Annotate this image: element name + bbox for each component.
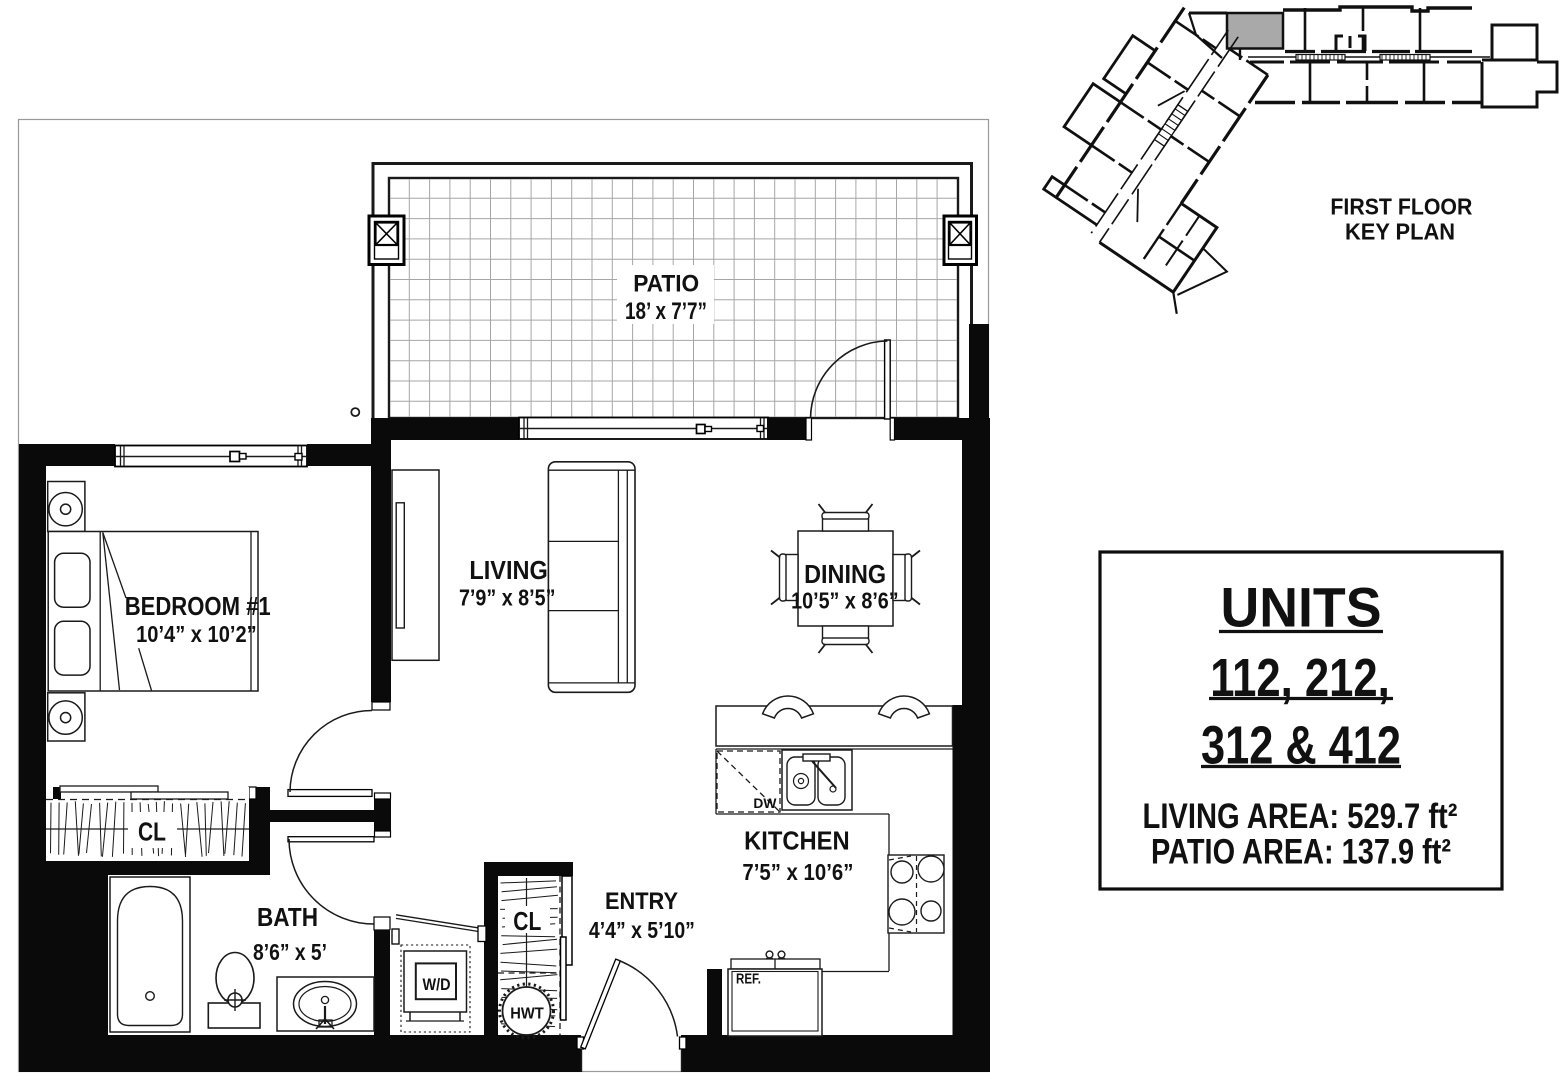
svg-text:10’4” x 10’2”: 10’4” x 10’2” bbox=[136, 621, 257, 647]
svg-text:CL: CL bbox=[513, 906, 541, 936]
svg-text:4’4” x 5’10”: 4’4” x 5’10” bbox=[589, 917, 695, 943]
svg-text:10’5” x 8’6”: 10’5” x 8’6” bbox=[791, 587, 899, 613]
svg-text:W/D: W/D bbox=[423, 975, 451, 994]
svg-text:7’9” x 8’5”: 7’9” x 8’5” bbox=[459, 584, 556, 610]
svg-text:7’5” x 10’6”: 7’5” x 10’6” bbox=[742, 859, 853, 885]
svg-text:DW: DW bbox=[753, 795, 777, 811]
svg-text:UNITS: UNITS bbox=[1221, 575, 1382, 638]
svg-text:PATIO AREA: 137.9 ft²: PATIO AREA: 137.9 ft² bbox=[1151, 833, 1451, 872]
svg-text:LIVING AREA: 529.7 ft²: LIVING AREA: 529.7 ft² bbox=[1143, 797, 1458, 836]
svg-text:BATH: BATH bbox=[257, 902, 318, 932]
svg-text:KEY PLAN: KEY PLAN bbox=[1345, 219, 1455, 245]
svg-text:18’ x 7’7”: 18’ x 7’7” bbox=[625, 298, 707, 325]
svg-text:PATIO: PATIO bbox=[633, 270, 699, 297]
svg-text:REF.: REF. bbox=[736, 971, 761, 987]
svg-text:8’6” x 5’: 8’6” x 5’ bbox=[253, 939, 327, 965]
svg-text:DINING: DINING bbox=[804, 559, 886, 589]
svg-text:KITCHEN: KITCHEN bbox=[744, 826, 850, 856]
svg-text:FIRST FLOOR: FIRST FLOOR bbox=[1330, 193, 1472, 219]
svg-text:HWT: HWT bbox=[510, 1006, 544, 1023]
svg-text:CL: CL bbox=[138, 817, 166, 847]
svg-text:BEDROOM #1: BEDROOM #1 bbox=[125, 591, 271, 621]
svg-text:ENTRY: ENTRY bbox=[605, 888, 678, 915]
svg-text:LIVING: LIVING bbox=[469, 555, 548, 585]
